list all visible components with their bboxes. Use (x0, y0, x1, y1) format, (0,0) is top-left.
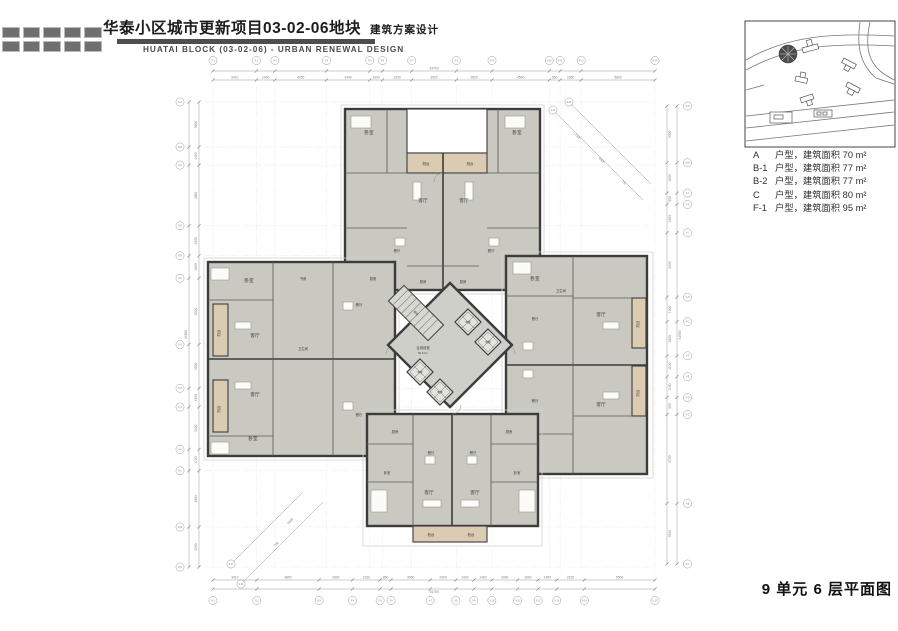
legend-item: B-2户型，建筑面积 77 m² (753, 175, 898, 188)
elevator-label: 电梯 (437, 390, 443, 394)
dim-value: 5500 (616, 575, 624, 579)
dim-value: 1650 (567, 75, 575, 79)
deco-square (2, 27, 20, 38)
legend-unit-text: 户型，建筑面积 77 m² (775, 176, 866, 186)
deco-square (23, 27, 41, 38)
dim-value: 3200 (668, 530, 672, 538)
dim-value: 5800 (614, 75, 622, 79)
grid-bubble-label: 9-D (686, 396, 690, 399)
grid-bubble-label: 9-G (686, 321, 690, 324)
wing-south: 厨房 厨房 餐厅 餐厅 客厅 客厅 卧室 卧室 阳台 阳台 (363, 405, 542, 546)
grid-bubble-label: 9-B (178, 146, 182, 149)
room-label: 卧室 (384, 470, 391, 475)
legend-unit-text: 户型，建筑面积 77 m² (775, 163, 866, 173)
dim-value: 900 (668, 403, 672, 409)
page-title-text: 华泰小区城市更新项目03-02-06地块 (103, 20, 361, 37)
dim-value: 1500 (194, 394, 198, 402)
legend-unit-code: B-1 (753, 162, 775, 175)
grid-bubble-label: 9-7 (410, 59, 414, 62)
grid-bubble-label: 9-L (686, 192, 690, 195)
dim-value: 3500 (194, 363, 198, 371)
dimension-strip-top: 347009-19-29-39-49-59-69-79-89-99-109-11… (209, 56, 659, 81)
grid-bubble-label: 9-3 (273, 59, 277, 62)
dim-value: 3410 (231, 75, 239, 79)
room-label: 客厅 (250, 391, 260, 398)
grid-bubble-label: 9-5 (378, 599, 382, 602)
deco-row (2, 41, 102, 52)
elevator-label: 电梯 (485, 340, 491, 344)
dim-value: 1450 (544, 575, 552, 579)
grid-bubble-label: 9-1 (211, 599, 215, 602)
room-label: 阳台 (428, 532, 435, 537)
grid-bubble-label: 9-N (686, 105, 690, 108)
room-label: 阳台 (467, 161, 474, 166)
room-label: 餐厅 (488, 248, 495, 253)
dim-value: 2400 (194, 237, 198, 245)
grid-bubble-label: 9-9 (490, 59, 494, 62)
grid-bubble-label: 9-15 (653, 599, 658, 602)
dim-value: 4500 (194, 495, 198, 503)
room-label: 卧室 (530, 275, 540, 282)
site-key-map (744, 20, 896, 148)
dim-total: 34700 (429, 66, 438, 70)
room-label: 卧室 (244, 277, 254, 284)
grid-bubble-label: 9-9 (472, 599, 476, 602)
grid-bubble-label: 9-L (178, 470, 182, 473)
grid-bubble-label: 9-6 (381, 59, 385, 62)
dim-value: 2000 (501, 575, 509, 579)
dim-value: 1450 (194, 152, 198, 160)
room-label: 客厅 (418, 197, 428, 204)
deco-square (43, 27, 61, 38)
page-title: 华泰小区城市更新项目03-02-06地块建筑方案设计 (103, 16, 403, 38)
room-label: 阳台 (635, 320, 640, 327)
grid-bubble-label: 9-A (686, 563, 690, 566)
grid-bubble-label: 9-5 (368, 59, 372, 62)
room-label: 阳台 (635, 389, 640, 396)
dim-value: 2800 (471, 75, 479, 79)
deco-square (2, 41, 20, 52)
legend-item: B-1户型，建筑面积 77 m² (753, 162, 898, 175)
legend-unit-text: 户型，建筑面积 80 m² (775, 190, 866, 200)
room-label: 客厅 (470, 489, 480, 496)
dim-value: 1600 (524, 575, 532, 579)
dim-value: 4800 (286, 517, 294, 525)
floor-plan: 347009-19-29-39-49-59-69-79-89-99-109-11… (173, 52, 703, 612)
dim-value: 3500 (430, 75, 438, 79)
dim-value: 4850 (284, 575, 292, 579)
page-title-suffix: 建筑方案设计 (370, 24, 439, 36)
grid-bubble-label: 9-H (178, 387, 182, 390)
grid-bubble-label: 9-17 (229, 563, 234, 566)
grid-bubble-label: 9-12 (579, 59, 584, 62)
grid-bubble-label: 9-E (178, 255, 182, 258)
dim-value: 2300 (393, 75, 401, 79)
grid-bubble-label: 9-12 (536, 599, 541, 602)
grid-bubble-label: 9-3 (317, 599, 321, 602)
grid-bubble-label: 9-J (178, 406, 182, 409)
room-label: 餐厅 (532, 316, 539, 321)
grid-bubble-label: 9-4 (351, 599, 355, 602)
dim-value: 3050 (407, 575, 415, 579)
legend-unit-text: 户型，建筑面积 95 m² (775, 203, 866, 213)
deco-square (84, 27, 102, 38)
room-label: 卫生间 (298, 346, 309, 351)
grid-bubble-label: 9-13 (554, 599, 559, 602)
dim-value: 3400 (344, 75, 352, 79)
grid-bubble-label: 9-F (178, 277, 182, 280)
dim-value: 3000 (668, 131, 672, 139)
dimension-strip-bottom: 347009-19-29-39-49-59-69-79-89-99-109-11… (209, 575, 659, 604)
dim-value: 1500 (574, 132, 582, 140)
grid-bubble-label: 9-M (178, 526, 182, 529)
dim-total: 34900 (678, 330, 682, 339)
deco-row (2, 27, 102, 38)
grid-bubble-label: 9-7 (428, 599, 432, 602)
room-label: 餐厅 (356, 302, 363, 307)
diagonal-grid-top-right: 9-14 9-15 1500 4800 700 (549, 98, 651, 200)
dim-value: 4800 (598, 156, 606, 164)
grid-bubble-label: 9-K (178, 448, 182, 451)
grid-bubble-label: 9-16 (239, 583, 244, 586)
grid-bubble-label: 9-15 (567, 101, 572, 104)
grid-bubble-label: 9-N (178, 566, 182, 569)
dim-value: 700 (620, 179, 627, 186)
dimension-strip-right: 349009-N9-M9-L9-K9-J9-H9-G9-F9-E9-D9-C9-… (665, 102, 691, 568)
dim-value: 1400 (461, 575, 469, 579)
dim-value: 3600 (194, 121, 198, 129)
dim-value: 1100 (668, 383, 672, 390)
grid-bubble-label: 9-14 (551, 109, 556, 112)
room-label: 客厅 (459, 197, 469, 204)
drawing-caption: 9 单元 6 层平面图 (672, 578, 892, 599)
grid-bubble-label: 9-A (178, 101, 182, 104)
grid-bubble-label: 9-8 (454, 599, 458, 602)
grid-bubble-label: 9-M (685, 162, 689, 165)
dim-value: 1000 (372, 75, 380, 79)
dim-total: 34900 (184, 330, 188, 339)
dim-value: 4050 (297, 75, 305, 79)
dim-value: 4700 (668, 455, 672, 463)
grid-bubble-label: 9-10 (547, 59, 552, 62)
grid-bubble-label: 9-6 (389, 599, 393, 602)
unit-legend: A户型，建筑面积 70 m²B-1户型，建筑面积 77 m²B-2户型，建筑面积… (753, 149, 898, 215)
grid-bubble-label: 9-C (686, 413, 690, 416)
deco-square (84, 41, 102, 52)
dim-value: 1450 (262, 75, 270, 79)
grid-bubble-label: 9-11 (515, 599, 520, 602)
elevator-label: 电梯 (417, 370, 423, 374)
room-label: 客厅 (596, 311, 606, 318)
grid-bubble-label: 9-14 (582, 599, 587, 602)
dim-value: 600 (668, 196, 672, 202)
grid-bubble-label: 9-E (686, 376, 690, 379)
room-label: 卧室 (512, 129, 522, 136)
grid-bubble-label: 9-2 (255, 59, 259, 62)
room-label: 卫生间 (556, 288, 567, 293)
room-label: 阳台 (216, 405, 221, 412)
room-label: 厨房 (506, 429, 513, 434)
dim-value: 2150 (363, 575, 371, 579)
core-hall-area: 65.17m² (418, 351, 428, 355)
legend-unit-code: C (753, 189, 775, 202)
grid-bubble-label: 9-D (178, 225, 182, 228)
dim-value: 1700 (194, 456, 198, 464)
dim-value: 700 (273, 541, 280, 548)
deco-square (64, 41, 82, 52)
room-label: 厨房 (420, 279, 427, 284)
deco-squares (2, 27, 102, 55)
dim-value: 3400 (668, 261, 672, 269)
room-label: 厨房 (370, 276, 377, 281)
dimension-strip-left: 349009-A9-B9-C9-D9-E9-F9-G9-H9-J9-K9-L9-… (176, 98, 201, 571)
grid-bubble-label: 9-J (686, 232, 690, 235)
room-label: 阳台 (216, 329, 221, 336)
site-map-frame (745, 21, 895, 147)
elevator-label: 电梯 (465, 320, 471, 324)
title-block: 华泰小区城市更新项目03-02-06地块建筑方案设计 HUATAI BLOCK … (103, 16, 403, 38)
legend-item: C户型，建筑面积 80 m² (753, 189, 898, 202)
room-label: 餐厅 (532, 398, 539, 403)
room-label: 阳台 (468, 532, 475, 537)
deco-square (43, 41, 61, 52)
room-label: 阳台 (423, 161, 430, 166)
balcony (413, 526, 487, 542)
legend-unit-code: A (753, 149, 775, 162)
dim-value: 2600 (332, 575, 340, 579)
room-label: 卧室 (364, 129, 374, 136)
room-label: 客厅 (596, 401, 606, 408)
legend-unit-code: F-1 (753, 202, 775, 215)
dim-value: 2000 (439, 575, 447, 579)
grid-bubble-label: 9-13 (653, 59, 658, 62)
site-map-highlight (779, 45, 797, 63)
core-hall-label: 合用前室 (416, 345, 430, 350)
room-label: 餐厅 (428, 450, 435, 455)
grid-bubble-label: 9-10 (489, 599, 494, 602)
dim-value: 3410 (231, 575, 239, 579)
dim-value: 1300 (668, 306, 672, 314)
dim-value: 2150 (567, 575, 575, 579)
room-label: 卧室 (248, 435, 258, 442)
room-label: 餐厅 (394, 248, 401, 253)
grid-bubble-label: 9-K (686, 203, 690, 206)
grid-bubble-label: 9-F (686, 355, 690, 358)
room-label: 餐厅 (356, 412, 363, 417)
legend-unit-text: 户型，建筑面积 70 m² (775, 150, 866, 160)
balcony (407, 153, 487, 173)
dim-value: 4850 (194, 192, 198, 200)
dim-value: 850 (383, 575, 389, 579)
grid-bubble-label: 9-1 (211, 59, 215, 62)
title-underline-bar (117, 39, 375, 44)
dim-value: 4500 (517, 75, 525, 79)
grid-bubble-label: 9-2 (255, 599, 259, 602)
dim-value: 1500 (668, 215, 672, 223)
dim-value: 3200 (194, 543, 198, 551)
dim-value: 1800 (668, 335, 672, 343)
dim-value: 1600 (668, 174, 672, 182)
legend-item: A户型，建筑面积 70 m² (753, 149, 898, 162)
deco-square (23, 41, 41, 52)
dim-value: 3400 (194, 424, 198, 432)
deco-square (64, 27, 82, 38)
room-label: 书房 (300, 276, 307, 281)
legend-unit-code: B-2 (753, 175, 775, 188)
room-label: 餐厅 (470, 450, 477, 455)
grid-bubble-label: 9-11 (558, 59, 563, 62)
grid-bubble-label: 9-G (178, 343, 182, 346)
room-label: 客厅 (250, 332, 260, 339)
grid-bubble-label: 9-4 (325, 59, 329, 62)
room-label: 厨房 (460, 279, 467, 284)
grid-bubble-label: 9-8 (455, 59, 459, 62)
dim-value: 850 (552, 75, 558, 79)
dim-value: 1400 (479, 575, 487, 579)
grid-bubble-label: 9-C (178, 164, 182, 167)
dim-total: 34700 (429, 590, 438, 594)
dim-value: 5300 (194, 308, 198, 316)
sheet: 华泰小区城市更新项目03-02-06地块建筑方案设计 HUATAI BLOCK … (0, 0, 898, 631)
grid-bubble-label: 9-H (686, 296, 690, 299)
dim-value: 1800 (194, 263, 198, 271)
room-label: 卧室 (514, 470, 521, 475)
dim-value: 1100 (668, 363, 672, 370)
room-label: 客厅 (424, 489, 434, 496)
grid-bubble-label: 9-B (686, 502, 690, 505)
legend-item: F-1户型，建筑面积 95 m² (753, 202, 898, 215)
room-label: 厨房 (392, 429, 399, 434)
